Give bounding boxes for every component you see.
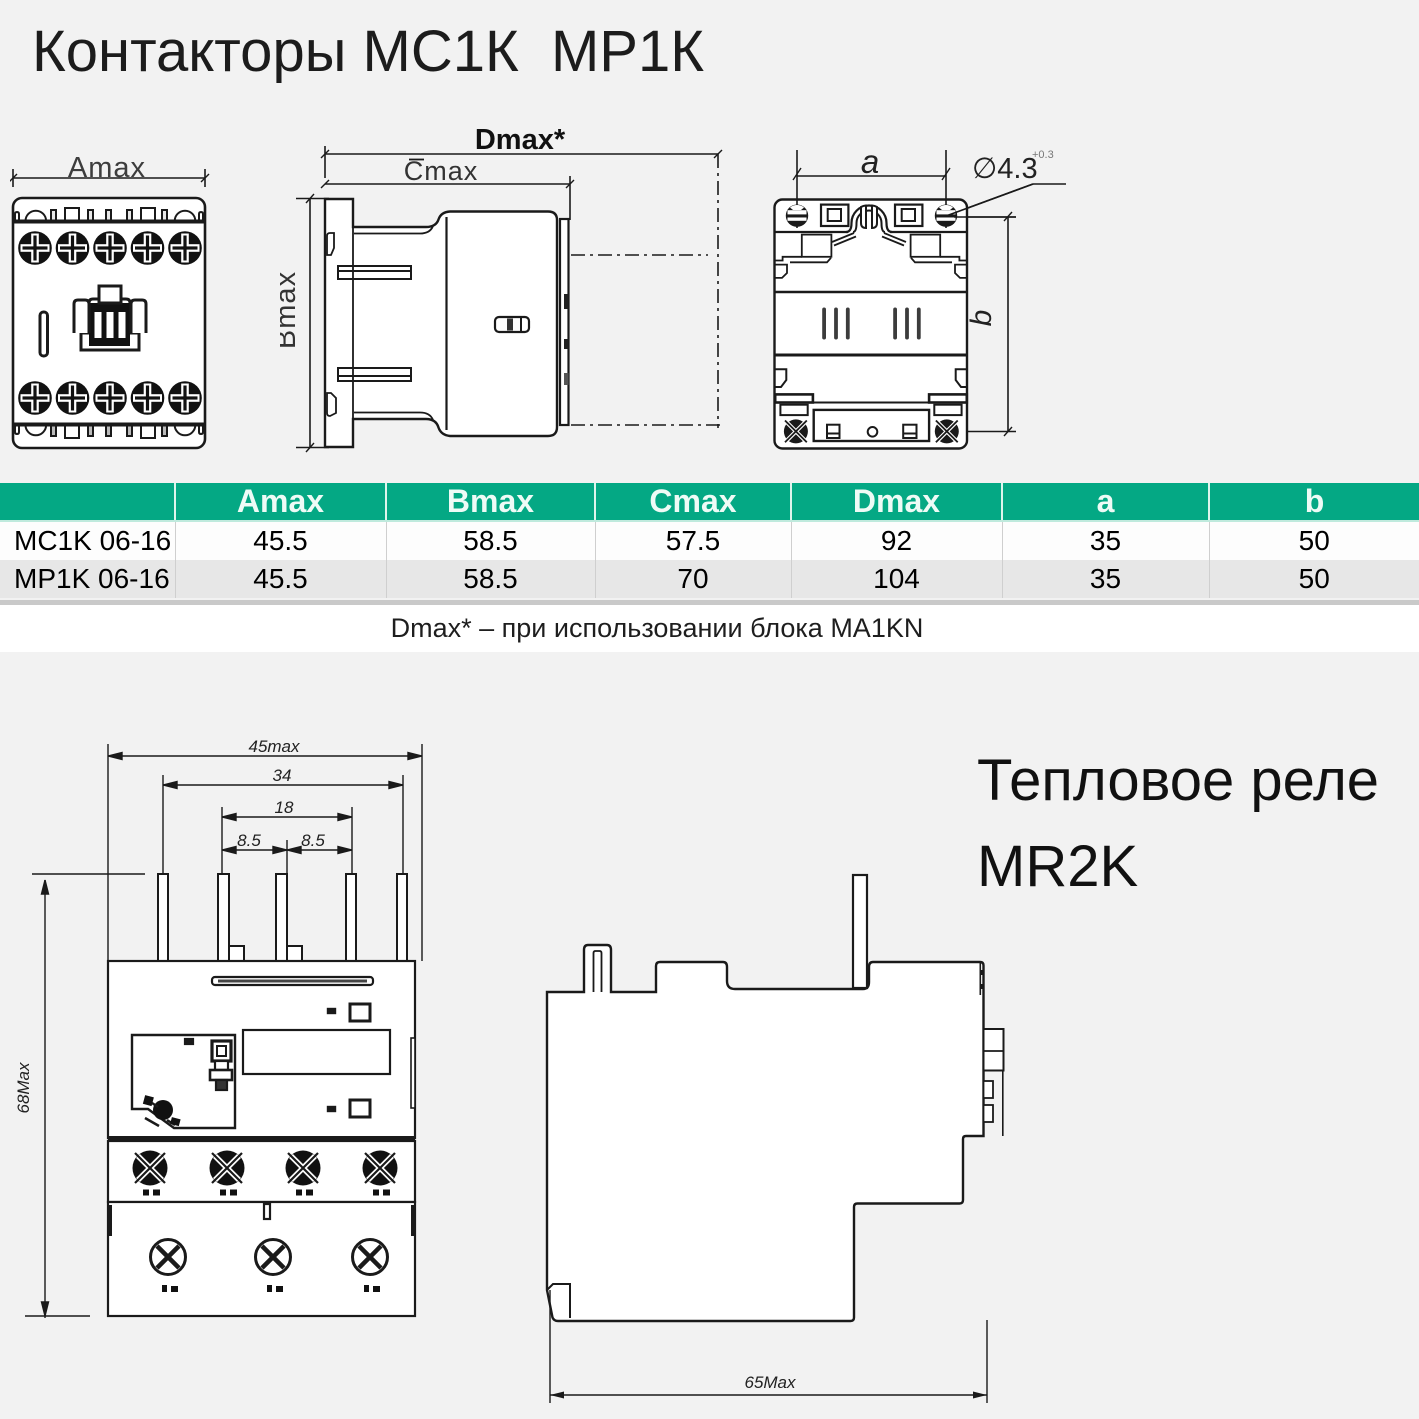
svg-text:34: 34 bbox=[273, 766, 292, 785]
svg-text:Bmax: Bmax bbox=[280, 271, 302, 349]
svg-text:a: a bbox=[861, 143, 879, 180]
svg-text:Amax: Amax bbox=[68, 152, 146, 184]
svg-text:Dmax*: Dmax* bbox=[475, 124, 566, 156]
svg-text:65Max: 65Max bbox=[744, 1373, 796, 1392]
svg-text:68Max: 68Max bbox=[15, 1062, 33, 1114]
svg-text:∅4.3: ∅4.3 bbox=[972, 153, 1038, 185]
svg-text:8.5: 8.5 bbox=[237, 831, 261, 850]
svg-text:+0.3: +0.3 bbox=[1032, 149, 1054, 161]
svg-text:b: b bbox=[965, 310, 998, 327]
svg-text:8.5: 8.5 bbox=[301, 831, 325, 850]
svg-text:18: 18 bbox=[275, 798, 294, 817]
svg-text:45max: 45max bbox=[248, 737, 300, 756]
svg-text:Cmax: Cmax bbox=[404, 156, 479, 186]
